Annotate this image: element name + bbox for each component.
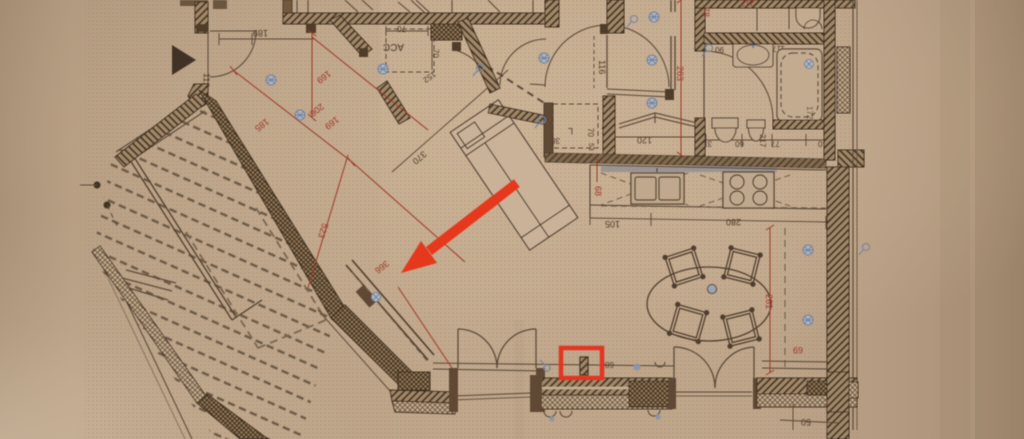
svg-text:ACC: ACC <box>383 41 404 52</box>
svg-text:78: 78 <box>701 7 711 17</box>
svg-text:77: 77 <box>771 139 780 148</box>
svg-text:261: 261 <box>764 294 774 309</box>
svg-text:50: 50 <box>801 417 811 427</box>
svg-text:120: 120 <box>637 135 652 145</box>
svg-text:53: 53 <box>587 143 594 151</box>
svg-text:280: 280 <box>726 217 741 227</box>
svg-text:69: 69 <box>793 345 803 355</box>
svg-text:90: 90 <box>715 45 724 54</box>
svg-text:68: 68 <box>593 186 603 196</box>
svg-text:189: 189 <box>253 28 268 38</box>
svg-text:70: 70 <box>397 24 406 33</box>
svg-text:60: 60 <box>735 139 744 148</box>
svg-text:212: 212 <box>740 0 755 8</box>
svg-text:105: 105 <box>605 219 620 229</box>
svg-text:116: 116 <box>597 60 607 74</box>
svg-text:L: L <box>568 126 573 136</box>
svg-text:172: 172 <box>805 106 814 120</box>
svg-text:263: 263 <box>675 66 685 81</box>
svg-text:70: 70 <box>586 128 595 137</box>
svg-text:70: 70 <box>431 49 440 58</box>
svg-text:217: 217 <box>758 134 767 148</box>
